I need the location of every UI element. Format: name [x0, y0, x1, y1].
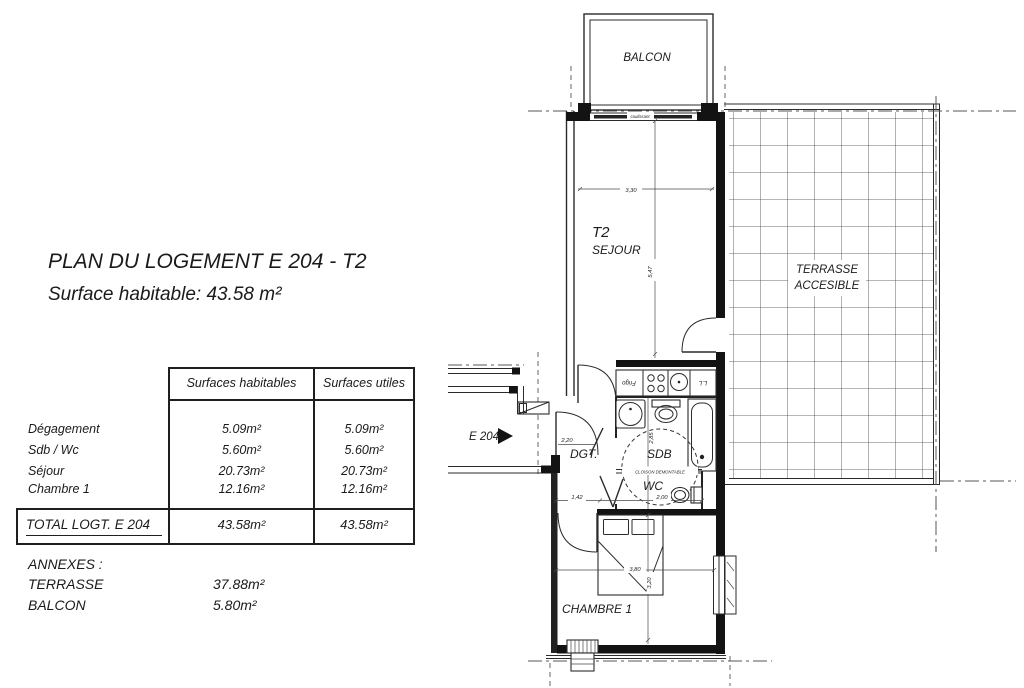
fridge-label: Frigo: [622, 379, 636, 385]
entrance-label: E 204: [469, 431, 499, 443]
hallway-label: DGT.: [570, 447, 598, 461]
dim-sejour-height: 5,47: [648, 266, 654, 278]
dim-chambre-height: 3,20: [647, 577, 653, 589]
sliding-door-label: coulissant: [630, 114, 650, 119]
terrace-label-line2: ACCESIBLE: [794, 280, 860, 292]
floor-plan-drawing: BALCON T2 SEJOUR TERRASSE ACCESIBLE DGT.…: [0, 0, 1024, 688]
washer-label: L.L: [699, 379, 707, 385]
washbasin-icon: [616, 400, 645, 428]
dim-dgt-depth: 1,42: [571, 495, 583, 501]
unit-type-label: T2: [592, 224, 610, 241]
living-room-label: SEJOUR: [592, 243, 641, 257]
window-icon: [714, 556, 737, 614]
floor-plan-sheet: PLAN DU LOGEMENT E 204 - T2 Surface habi…: [0, 0, 1024, 688]
bathroom-label: SDB: [647, 447, 672, 461]
dim-sejour-width: 3,30: [625, 188, 637, 194]
bedroom-label: CHAMBRE 1: [562, 602, 632, 616]
terrace-label-line1: TERRASSE: [796, 264, 858, 276]
partition-label: CLOISON DEMONTABLE: [635, 470, 685, 475]
dim-sdb-height: 2,85: [649, 432, 655, 445]
wc-label: WC: [643, 479, 663, 493]
radiator-icon: [567, 640, 598, 671]
entrance-arrow-icon: [498, 428, 513, 444]
dim-wc-width: 2,00: [655, 495, 668, 501]
balcony-label: BALCON: [623, 52, 671, 64]
dim-chambre-width: 3,80: [629, 567, 641, 573]
dim-dgt-width: 2,20: [560, 438, 573, 444]
